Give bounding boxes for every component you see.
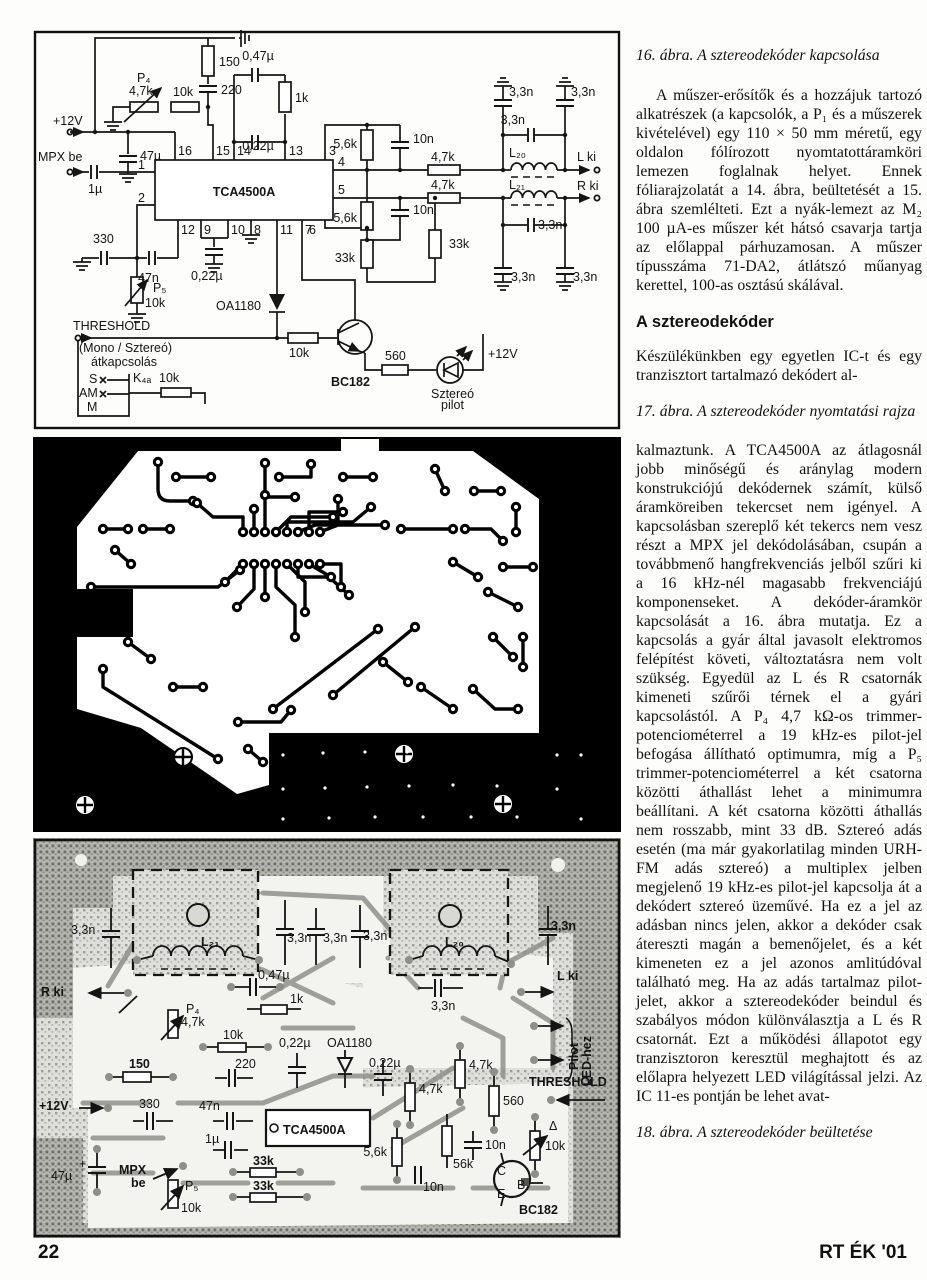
placement-svg: 3,3nL₂₁R ki0,47µ1kP₄4,7k10k3,3n3,3n3,3nL… xyxy=(33,838,621,1238)
diagram-label: Pilot xyxy=(567,1042,581,1070)
diagram-label: 150 xyxy=(219,55,240,69)
diagram-label: THRESHOLD xyxy=(529,1075,607,1089)
diagram-label: B xyxy=(517,1178,525,1192)
diagram-label: MPX xyxy=(119,1163,147,1177)
corner-hole xyxy=(75,854,87,866)
diagram-label: P₅ xyxy=(185,1179,198,1193)
diagram-label: 13 xyxy=(289,144,303,158)
diagram-label: 5,6k xyxy=(333,137,357,151)
diagram-label: 150 xyxy=(129,1057,150,1071)
figure-17-pcb-layout xyxy=(33,437,621,832)
diagram-label: 10k xyxy=(289,346,310,360)
diagram-label: 1µ xyxy=(205,1132,219,1146)
diagram-label: 330 xyxy=(139,1097,160,1111)
diagram-label: 220 xyxy=(221,83,242,97)
diagram-label: P₅ xyxy=(153,281,166,295)
diagram-label: 10n xyxy=(413,132,434,146)
diagram-label: R ki xyxy=(41,985,64,999)
terminal-l-ki xyxy=(594,167,599,172)
diagram-label: 12 xyxy=(181,223,195,237)
diagram-label: 4,7k xyxy=(469,1058,493,1072)
diagram-label: MPX be xyxy=(38,150,83,164)
figure-16-schematic: +12VMPX be1µP₄4,7k10k1502200,47µ1k0,22µ4… xyxy=(33,30,621,430)
diagram-label: 3,3n xyxy=(511,270,535,284)
coil-l20 xyxy=(511,163,557,170)
diagram-label: R ki xyxy=(577,179,599,193)
paragraph-2: Készülékünkben egy egyetlen IC-t és egy … xyxy=(636,347,922,385)
led-stereo-pilot xyxy=(437,357,463,383)
diagram-label: Δ xyxy=(549,1119,557,1133)
diagram-label: 4,7k xyxy=(129,84,153,98)
can-hole xyxy=(187,904,209,926)
diagram-label: 56k xyxy=(453,1157,474,1171)
diagram-label: 1 xyxy=(138,158,145,172)
diagram-label: 33k xyxy=(335,251,356,265)
diagram-label: 560 xyxy=(503,1094,524,1108)
diagram-label: L₂₀ xyxy=(509,146,526,160)
diagram-label: 4,7k xyxy=(181,1015,205,1029)
resistor-4k7-r xyxy=(428,193,460,203)
resistor-1k xyxy=(279,82,291,112)
diagram-label: 3,3n xyxy=(573,270,597,284)
diagram-label: 3,3n xyxy=(509,85,533,99)
diagram-label: 33k xyxy=(253,1179,274,1193)
diagram-label: 9 xyxy=(204,223,211,237)
diagram-label: +12V xyxy=(53,114,83,128)
terminal-r-ki xyxy=(594,195,599,200)
diagram-label: 10k xyxy=(173,85,194,99)
diagram-label: 33k xyxy=(449,237,470,251)
diagram-label: 11 xyxy=(280,223,293,237)
diagram-label: 4,7k xyxy=(431,178,455,192)
diagram-label: 560 xyxy=(385,349,406,363)
diagram-label: 1µ xyxy=(88,182,102,196)
diagram-label: TCA4500A xyxy=(283,1123,346,1137)
resistor-5k6-a xyxy=(361,130,373,160)
diagram-label: 3,3n xyxy=(431,999,455,1013)
diagram-label: 3,3n xyxy=(501,113,525,127)
page-number: 22 xyxy=(38,1242,59,1264)
terminal-threshold xyxy=(75,335,80,340)
paragraph-3: kalmaztunk. A TCA4500A az átlagosnál job… xyxy=(636,441,922,1106)
schematic-labels: +12VMPX be1µP₄4,7k10k1502200,47µ1k0,22µ4… xyxy=(38,49,599,414)
diagram-label: S xyxy=(89,372,97,386)
mount-hole xyxy=(174,748,192,766)
resistor-4k7-l xyxy=(428,165,460,175)
diagram-label: 3,3n xyxy=(287,931,311,945)
diagram-label: pilot xyxy=(441,398,464,412)
diagram-label: L₂₁ xyxy=(201,935,219,949)
diagram-label: TCA4500A xyxy=(213,185,276,199)
diagram-label: 3,3n xyxy=(71,923,95,937)
diagram-label: 10k xyxy=(223,1028,244,1042)
magazine-issue: RT ÉK '01 xyxy=(819,1242,907,1264)
diagram-label: BC182 xyxy=(331,375,370,389)
resistor-560 xyxy=(382,365,408,375)
diagram-label: 10k xyxy=(159,371,180,385)
diagram-label: 4 xyxy=(338,155,345,169)
diagram-label: 220 xyxy=(235,1057,256,1071)
diagram-label: 3,3n xyxy=(551,919,576,933)
diagram-label: 10k xyxy=(145,296,166,310)
caption-fig18: 18. ábra. A sztereodekóder beültetése xyxy=(636,1123,922,1142)
diagram-label: 5,6k xyxy=(363,1145,387,1159)
diagram-label: +12V xyxy=(488,347,518,361)
resistor-150 xyxy=(202,46,214,76)
diagram-label: 15 xyxy=(216,144,230,158)
resistor-10k xyxy=(171,102,199,112)
coil-l21 xyxy=(511,191,557,198)
mount-hole xyxy=(76,796,94,814)
diagram-label: (Mono / Sztereó) xyxy=(79,341,172,355)
diode-oa1180 xyxy=(269,294,285,310)
diagram-label: 0,47µ xyxy=(258,968,290,982)
diagram-label: be xyxy=(131,1176,146,1190)
text-column: 16. ábra. A sztereodekóder kapcsolása A … xyxy=(636,0,922,1142)
diagram-label: 5,6k xyxy=(333,211,357,225)
diagram-label: 10n xyxy=(413,203,434,217)
resistor-10k-switch xyxy=(161,388,191,397)
diagram-label: 330 xyxy=(93,232,114,246)
diagram-label: 4,7k xyxy=(419,1082,443,1096)
diagram-label: 7 xyxy=(305,223,312,237)
corner-hole xyxy=(551,858,565,872)
diagram-label: 10k xyxy=(545,1139,566,1153)
diagram-label: C xyxy=(497,1164,506,1178)
diagram-label: K₄ₐ xyxy=(133,371,151,385)
schematic-svg: +12VMPX be1µP₄4,7k10k1502200,47µ1k0,22µ4… xyxy=(33,30,621,430)
terminal-mpx xyxy=(67,169,72,174)
mount-hole xyxy=(395,745,413,763)
diagram-label: P₄ xyxy=(186,1002,199,1016)
diagram-label: 4,7k xyxy=(431,150,455,164)
resistor-33k-b xyxy=(429,230,441,258)
section-heading: A sztereodekóder xyxy=(636,313,922,332)
diagram-label: 3,3n xyxy=(571,85,595,99)
can-hole xyxy=(439,905,461,927)
diagram-label: E xyxy=(497,1187,505,1201)
diagram-label: 3,3n xyxy=(323,931,347,945)
diagram-label: M xyxy=(87,400,97,414)
caption-fig16: 16. ábra. A sztereodekóder kapcsolása xyxy=(636,46,922,65)
diagram-label: 10n xyxy=(423,1180,444,1194)
paragraph-1: A műszer-erősítők és a hozzájuk tartozó … xyxy=(636,86,922,295)
diagram-label: OA1180 xyxy=(327,1036,372,1050)
diagram-label: +12V xyxy=(39,1099,69,1113)
diagram-label: P₄ xyxy=(137,71,150,85)
diagram-label: 16 xyxy=(178,144,192,158)
magazine-page: +12VMPX be1µP₄4,7k10k1502200,47µ1k0,22µ4… xyxy=(0,0,927,1280)
diagram-label: 2 xyxy=(138,191,145,205)
diagram-label: 5 xyxy=(338,183,345,197)
diagram-label: 0,47µ xyxy=(242,49,274,63)
diagram-label: OA1180 xyxy=(216,299,261,313)
diagram-label: L₂₁ xyxy=(509,178,525,192)
diagram-label: AM xyxy=(79,386,98,400)
diagram-label: 33k xyxy=(253,1154,274,1168)
diagram-label: THRESHOLD xyxy=(73,319,150,333)
diagram-label: 3,3n xyxy=(363,929,387,943)
diagram-label: L₂₀ xyxy=(445,935,464,949)
pcb-svg xyxy=(33,437,621,832)
diagram-label: LED-hez xyxy=(580,1036,594,1086)
figure-18-placement: 3,3nL₂₁R ki0,47µ1kP₄4,7k10k3,3n3,3n3,3nL… xyxy=(33,838,621,1238)
diagram-label: 1k xyxy=(290,992,304,1006)
resistor-33k-a xyxy=(361,240,373,268)
diagram-label: 1k xyxy=(295,91,309,105)
diagram-label: 14 xyxy=(237,144,251,158)
diagram-label: 3,3n xyxy=(538,218,562,232)
diagram-label: átkapcsolás xyxy=(91,355,157,369)
diagram-label: 10 xyxy=(231,223,245,237)
diagram-label: 0,22µ xyxy=(191,269,223,283)
mount-hole xyxy=(494,795,512,813)
diagram-label: + xyxy=(79,1157,86,1171)
diagram-label: 0,22µ xyxy=(279,1036,311,1050)
diagram-label: 8 xyxy=(254,223,261,237)
resistor-10k-base xyxy=(288,333,318,343)
diagram-label: L ki xyxy=(577,150,596,164)
diagram-label: BC182 xyxy=(519,1203,558,1217)
diagram-label: 10k xyxy=(181,1201,202,1215)
diagram-label: 47n xyxy=(199,1099,220,1113)
diagram-label: 0,22µ xyxy=(369,1056,401,1070)
diagram-label: L ki xyxy=(557,969,578,983)
caption-fig17: 17. ábra. A sztereodekóder nyomtatási ra… xyxy=(636,402,922,421)
diagram-label: 10n xyxy=(485,1138,506,1152)
diagram-label: 47µ xyxy=(51,1169,72,1183)
